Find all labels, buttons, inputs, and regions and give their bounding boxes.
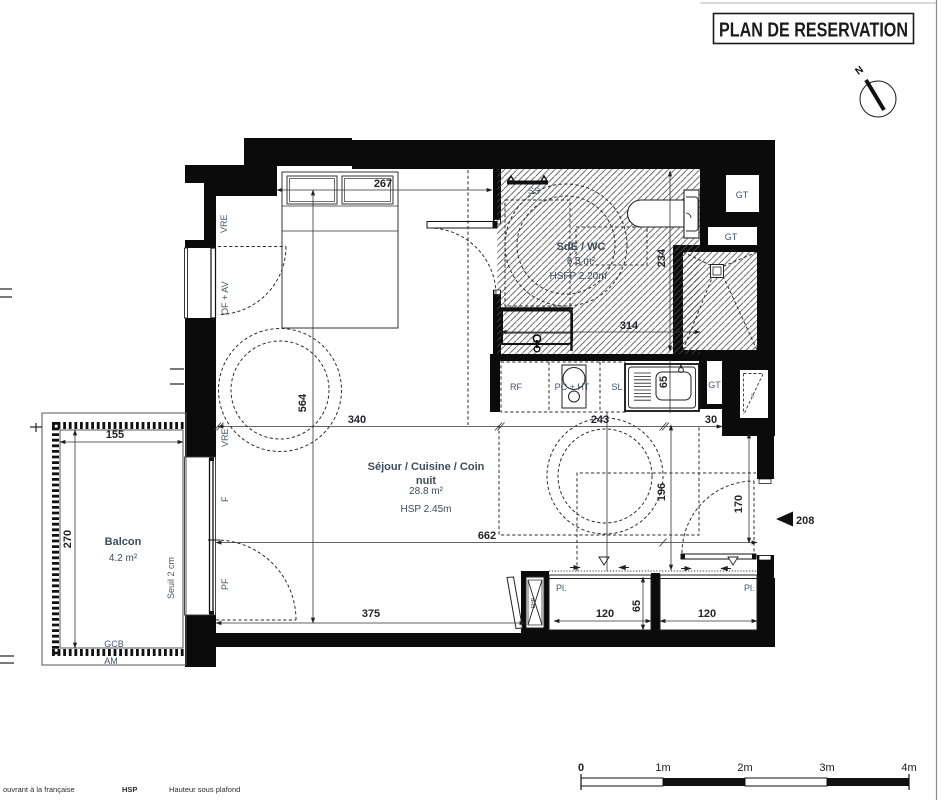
svg-text:375: 375	[362, 608, 380, 620]
svg-text:28.8 m²: 28.8 m²	[409, 486, 444, 497]
svg-text:GT: GT	[736, 190, 749, 200]
svg-text:GCB: GCB	[104, 639, 124, 649]
svg-text:170: 170	[733, 495, 745, 513]
svg-text:662: 662	[478, 530, 496, 542]
svg-text:HSFP 2.20m: HSFP 2.20m	[549, 271, 606, 282]
svg-text:1m: 1m	[655, 762, 670, 774]
svg-text:243: 243	[591, 414, 609, 426]
svg-text:Hauteur sous plafond: Hauteur sous plafond	[169, 785, 240, 794]
svg-text:AM: AM	[104, 656, 118, 666]
svg-text:208: 208	[796, 515, 814, 527]
svg-text:HSP 2.45m: HSP 2.45m	[401, 504, 452, 515]
svg-text:564: 564	[297, 393, 309, 412]
svg-text:SdE / WC: SdE / WC	[557, 241, 606, 253]
svg-text:0: 0	[578, 762, 584, 774]
svg-text:155: 155	[106, 429, 124, 441]
svg-text:HSP: HSP	[122, 785, 137, 794]
svg-text:F: F	[220, 496, 230, 502]
svg-text:4.2 m²: 4.2 m²	[109, 553, 138, 564]
svg-text:ouvrant à la française: ouvrant à la française	[3, 785, 75, 794]
svg-text:VRE: VRE	[219, 214, 229, 233]
svg-text:Seuil 2 cm: Seuil 2 cm	[166, 557, 176, 599]
svg-text:65: 65	[658, 376, 670, 388]
svg-text:120: 120	[698, 608, 716, 620]
svg-text:RF: RF	[510, 382, 522, 392]
svg-text:2m: 2m	[737, 762, 752, 774]
svg-text:65: 65	[631, 600, 643, 612]
svg-text:EHR: EHR	[531, 597, 537, 608]
svg-text:6.3 m²: 6.3 m²	[567, 256, 596, 267]
svg-text:340: 340	[348, 414, 366, 426]
svg-text:PLAN DE RESERVATION: PLAN DE RESERVATION	[719, 20, 908, 42]
svg-text:VRE: VRE	[220, 428, 230, 447]
svg-text:314: 314	[620, 320, 639, 332]
svg-text:SL: SL	[611, 382, 622, 392]
svg-text:120: 120	[596, 608, 614, 620]
svg-text:270: 270	[62, 530, 74, 548]
svg-text:PF: PF	[220, 578, 230, 590]
svg-text:OF + AV: OF + AV	[220, 281, 230, 315]
svg-text:3m: 3m	[819, 762, 834, 774]
svg-text:Pl.: Pl.	[556, 583, 567, 593]
svg-text:PC + HT: PC + HT	[555, 382, 590, 392]
svg-text:GT: GT	[725, 232, 738, 242]
svg-text:196: 196	[656, 483, 668, 501]
svg-text:Séjour / Cuisine / Coin: Séjour / Cuisine / Coin	[368, 461, 485, 473]
svg-text:267: 267	[374, 178, 392, 190]
svg-text:Pl.: Pl.	[744, 583, 755, 593]
svg-text:234: 234	[656, 248, 668, 267]
svg-text:30: 30	[705, 414, 717, 426]
svg-text:GT: GT	[708, 380, 721, 390]
svg-text:4m: 4m	[901, 762, 916, 774]
svg-text:Balcon: Balcon	[105, 536, 142, 548]
